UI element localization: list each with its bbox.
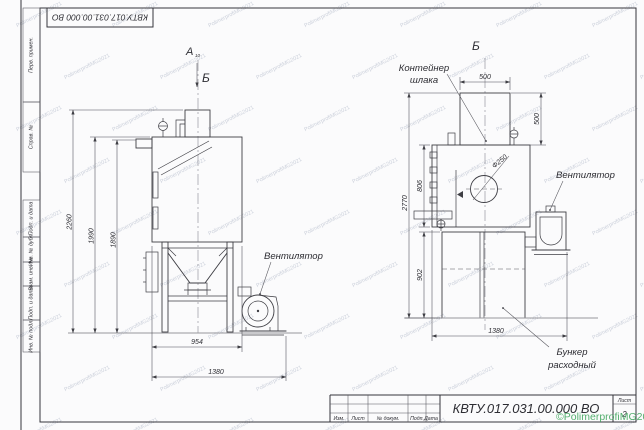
dim-height-total: 2260 xyxy=(67,214,74,231)
fan-right-annotation: Вентилятор xyxy=(550,170,615,210)
view-b-title: Б xyxy=(472,39,480,53)
hopper-label-2: расходный xyxy=(547,360,597,371)
fan-front-view xyxy=(525,206,570,255)
fan-left-annotation: Вентилятор xyxy=(260,251,323,294)
slag-container-label-2: шлака xyxy=(410,75,438,86)
titleblock-col-izm: Изм. xyxy=(333,416,344,422)
sheet-label: Лист xyxy=(617,398,632,404)
view-a-label: А xyxy=(185,46,193,58)
dim-width-total: 1380 xyxy=(208,369,224,376)
margin-cell-label: Перв. примен. xyxy=(29,37,35,73)
view-direction-b-label: Б xyxy=(202,71,210,85)
view-b: Б xyxy=(399,39,615,371)
dim-height-body: 1990 xyxy=(89,228,96,244)
fan-side-view xyxy=(238,287,286,335)
margin-cell-label: Инв. № подл. xyxy=(29,319,35,352)
technical-drawing-canvas: Перв. примен. Справ. № Подп. и дата Инв.… xyxy=(0,0,644,430)
green-watermark: ©PolimerprofiMG2021 xyxy=(556,411,644,423)
margin-column: Перв. примен. Справ. № Подп. и дата Инв.… xyxy=(23,8,40,353)
dim-container-height: 500 xyxy=(534,113,541,125)
slag-container-annotation: Контейнер шлака xyxy=(399,63,486,141)
drawing-page: PolimerprofiMG2021PolimerprofiMG2021Poli… xyxy=(0,0,644,430)
margin-cell-label: Справ. № xyxy=(29,125,35,150)
titleblock-col-podp: Подп. xyxy=(410,416,424,422)
titleblock-col-docnum: № докум. xyxy=(377,416,400,422)
view-a-dimensions: 2260 1990 1890 954 1380 xyxy=(67,110,287,381)
view-b-dimensions: 500 500 2770 806 902 1380 xyxy=(402,74,567,341)
view-a-label-subscript: 10 xyxy=(195,53,201,58)
margin-cell-label: Взам. инв. № xyxy=(29,257,35,291)
margin-cell-label: Подп. и дата xyxy=(29,286,35,320)
drawing-frame xyxy=(21,0,636,430)
dim-height-flange: 1890 xyxy=(111,232,118,248)
dim-stand-height: 902 xyxy=(417,269,424,281)
dim-port-diameter: Ф250 xyxy=(491,154,509,171)
top-stamp: КВТУ.017.031.00.000 ВО xyxy=(47,8,153,27)
fan-left-label: Вентилятор xyxy=(264,251,323,262)
machine-outline-front-view xyxy=(414,93,530,318)
hopper-annotation: Бункер расходный xyxy=(503,308,597,371)
dim-cabinet-height: 806 xyxy=(417,180,424,192)
top-stamp-text: КВТУ.017.031.00.000 ВО xyxy=(52,13,148,23)
slag-container-label-1: Контейнер xyxy=(399,63,449,74)
view-a: А 10 Б xyxy=(67,46,323,381)
dim-total-height: 2770 xyxy=(402,195,409,212)
dim-stand-width: 1380 xyxy=(488,328,504,335)
margin-cell-label: Подп. и дата xyxy=(29,202,35,236)
dim-container-width: 500 xyxy=(479,74,491,81)
fan-right-label: Вентилятор xyxy=(556,170,615,181)
titleblock-col-list: Лист xyxy=(350,416,365,422)
titleblock-col-data: Дата xyxy=(423,416,438,422)
hopper-label-1: Бункер xyxy=(556,347,587,358)
dim-width-stand: 954 xyxy=(191,339,203,346)
